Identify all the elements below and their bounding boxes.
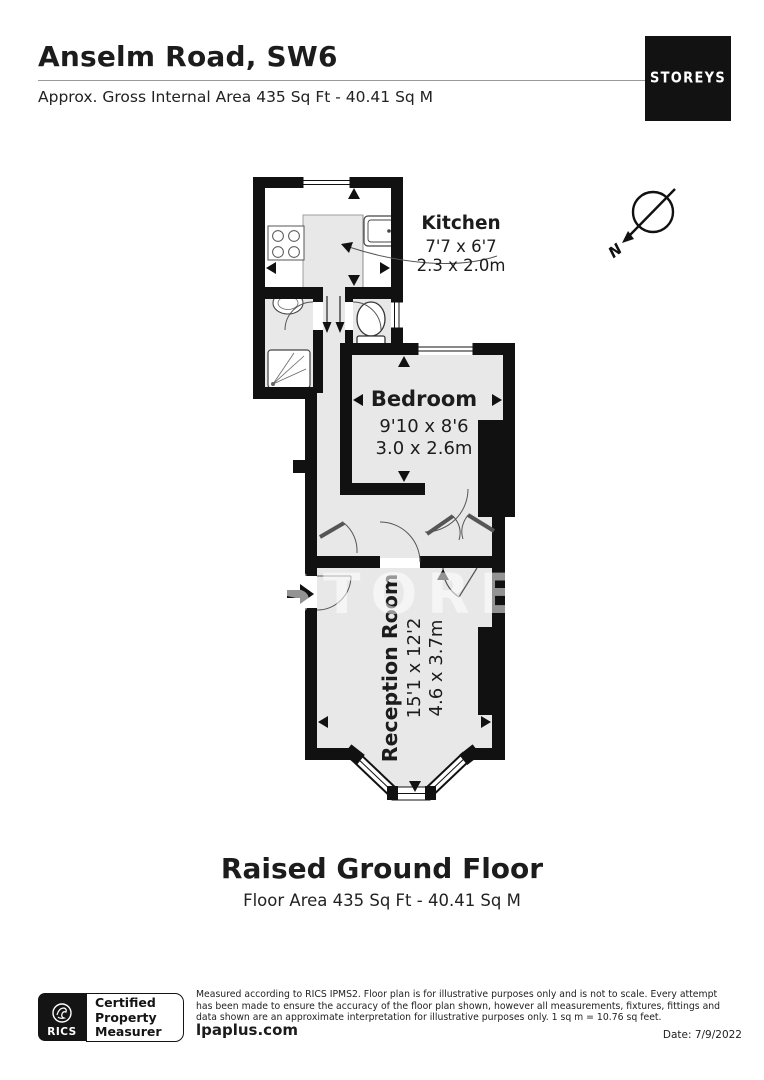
floorplan-page: Anselm Road, SW6 Approx. Gross Internal … <box>0 0 764 1080</box>
website-link[interactable]: lpaplus.com <box>196 1021 298 1039</box>
kitchen-label: Kitchen <box>421 213 500 234</box>
certified-line: Certified <box>95 996 183 1011</box>
disclaimer-text: Measured according to RICS IPMS2. Floor … <box>196 989 748 1024</box>
bedroom-label: Bedroom <box>371 387 477 411</box>
floor-title: Raised Ground Floor <box>0 852 764 885</box>
bedroom-window <box>418 343 473 355</box>
bedroom-dims-m: 3.0 x 2.6m <box>376 438 473 459</box>
compass-icon: N <box>605 189 675 262</box>
bedroom-dims-ft: 9'10 x 8'6 <box>379 416 468 437</box>
kitchen-window <box>303 177 350 188</box>
compass-north-label: N <box>605 240 626 262</box>
floor-area-subtitle: Floor Area 435 Sq Ft - 40.41 Sq M <box>0 891 764 910</box>
rics-lion-icon <box>49 1000 75 1026</box>
wc-window <box>391 302 403 328</box>
date-label: Date: 7/9/2022 <box>663 1029 742 1041</box>
reception-dims-m: 4.6 x 3.7m <box>426 620 447 717</box>
toilet-icon <box>357 302 385 336</box>
certified-line: Measurer <box>95 1025 183 1040</box>
kitchen-dims-ft: 7'7 x 6'7 <box>425 237 496 256</box>
rics-label: RICS <box>47 1026 76 1038</box>
reception-dims-ft: 15'1 x 12'2 <box>404 618 425 719</box>
watermark: STOREYS <box>273 562 626 626</box>
certified-line: Property <box>95 1011 183 1026</box>
rics-logo: RICS <box>38 993 86 1041</box>
certified-property-measurer-badge: Certified Property Measurer <box>86 993 184 1042</box>
floor-plan: N Kitchen 7'7 x 6'7 2.3 x 2.0m Bedroom 9… <box>0 0 764 840</box>
kitchen-dims-m: 2.3 x 2.0m <box>417 256 506 275</box>
